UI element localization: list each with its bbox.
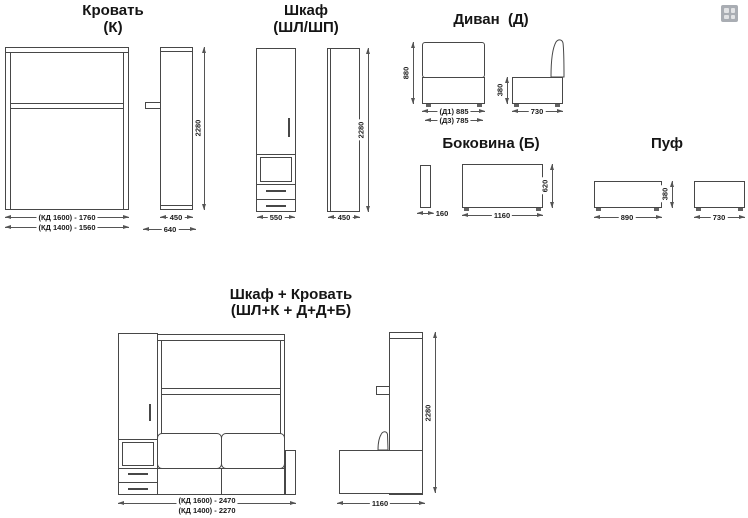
combo-side-sofa-base <box>339 450 423 494</box>
pouf-side-view <box>694 181 745 208</box>
grid-icon-square <box>724 8 729 13</box>
dim-line <box>435 332 436 493</box>
pouf-foot <box>696 208 701 211</box>
pouf-foot <box>738 208 743 211</box>
combo-side-backrest <box>376 431 390 451</box>
divider-line <box>257 154 295 155</box>
combo-cabinet <box>118 333 158 495</box>
bed-side-view <box>160 47 193 210</box>
drawer-handle <box>266 205 286 207</box>
dim-label: (КД 1400) - 2270 <box>176 506 237 515</box>
divider-line <box>257 199 295 200</box>
dim-line <box>417 213 434 214</box>
dim-label: 2280 <box>194 118 203 139</box>
dim-label: 550 <box>268 213 285 222</box>
edge-line <box>123 52 124 209</box>
dim-label: 880 <box>402 65 411 82</box>
dim-line <box>413 42 414 104</box>
dim-label: 380 <box>661 186 670 203</box>
side-panel-title: Боковина (Б) <box>442 136 539 152</box>
dim-label: 450 <box>168 213 185 222</box>
dim-label: (Д3) 785 <box>437 116 470 125</box>
wardrobe-front-view <box>256 48 296 212</box>
combo-armrest <box>285 450 296 495</box>
drawer-handle <box>128 473 148 475</box>
combo-sofa-cushion <box>157 433 222 469</box>
dim-label: (КД 1600) - 2470 <box>176 496 237 505</box>
sofa-foot <box>426 104 431 107</box>
dim-label: 160 <box>434 209 451 218</box>
pouf-foot <box>596 208 601 211</box>
wardrobe-code: (ШЛ/ШП) <box>273 20 339 36</box>
pouf-foot <box>654 208 659 211</box>
sofa-side-backrest <box>549 39 567 78</box>
dim-line <box>204 47 205 210</box>
dim-label: 730 <box>529 107 546 116</box>
bed-front-view <box>5 47 129 210</box>
divider-line <box>119 468 157 469</box>
drawer-handle <box>128 488 148 490</box>
divider-line <box>161 388 281 389</box>
dim-label: 1160 <box>370 499 390 508</box>
divider-line <box>221 469 222 494</box>
cabinet-door-handle <box>149 404 151 421</box>
wardrobe-title: Шкаф <box>284 3 328 19</box>
sofa-foot <box>555 104 560 107</box>
edge-line <box>10 52 11 209</box>
dim-label: 450 <box>336 213 353 222</box>
dim-label: 2280 <box>424 403 433 424</box>
side-panel-foot <box>536 208 541 211</box>
side-panel-face-view <box>462 164 543 208</box>
edge-line <box>158 340 284 341</box>
combo-code: (ШЛ+К + Д+Д+Б) <box>231 303 351 319</box>
sofa-front-backrest <box>422 42 485 78</box>
divider-line <box>119 439 157 440</box>
grid-icon-square <box>731 15 736 20</box>
divider-line <box>10 108 124 109</box>
dim-label: 380 <box>496 82 505 99</box>
dim-line <box>672 181 673 208</box>
combo-title: Шкаф + Кровать <box>230 287 353 303</box>
dim-label: 640 <box>162 225 179 234</box>
bed-handle <box>145 102 161 109</box>
divider-line <box>119 482 157 483</box>
wardrobe-side-view <box>327 48 360 212</box>
grid-icon-square <box>731 8 736 13</box>
cabinet-open-shelf <box>122 442 154 466</box>
bed-code: (К) <box>103 20 122 36</box>
furniture-drawing-sheet: Кровать (К) (КД 1600) - 1760 (КД 1400) -… <box>0 0 748 518</box>
dim-label: (КД 1400) - 1560 <box>36 223 97 232</box>
dim-line <box>552 164 553 208</box>
dim-label: 890 <box>619 213 636 222</box>
dim-label: 2280 <box>357 120 366 141</box>
sofa-front-seat <box>422 77 485 104</box>
combo-side-handle <box>376 386 390 395</box>
grid-icon[interactable] <box>721 5 738 22</box>
sofa-foot <box>477 104 482 107</box>
dim-line <box>368 48 369 212</box>
dim-label: 730 <box>711 213 728 222</box>
dim-label: 620 <box>541 178 550 195</box>
dim-label: 1160 <box>492 211 512 220</box>
grid-icon-square <box>724 15 729 20</box>
sofa-foot <box>514 104 519 107</box>
edge-line <box>161 51 192 52</box>
edge-line <box>330 49 331 211</box>
pouf-front-view <box>594 181 662 208</box>
combo-sofa-base <box>157 468 285 495</box>
pouf-title: Пуф <box>651 136 683 152</box>
drawer-handle <box>266 190 286 192</box>
sofa-title: Диван (Д) <box>453 12 528 28</box>
dim-label: (Д1) 885 <box>437 107 470 116</box>
divider-line <box>161 394 281 395</box>
wardrobe-open-shelf <box>260 157 292 182</box>
bed-title: Кровать <box>82 3 143 19</box>
edge-line <box>390 338 422 339</box>
edge-line <box>161 205 192 206</box>
side-panel-foot <box>464 208 469 211</box>
sofa-side-seat <box>512 77 563 104</box>
divider-line <box>257 184 295 185</box>
edge-line <box>6 52 128 53</box>
wardrobe-door-handle <box>288 118 290 137</box>
dim-label: (КД 1600) - 1760 <box>36 213 97 222</box>
combo-sofa-cushion <box>221 433 285 469</box>
divider-line <box>10 103 124 104</box>
dim-line <box>507 77 508 104</box>
side-panel-edge-view <box>420 165 431 208</box>
